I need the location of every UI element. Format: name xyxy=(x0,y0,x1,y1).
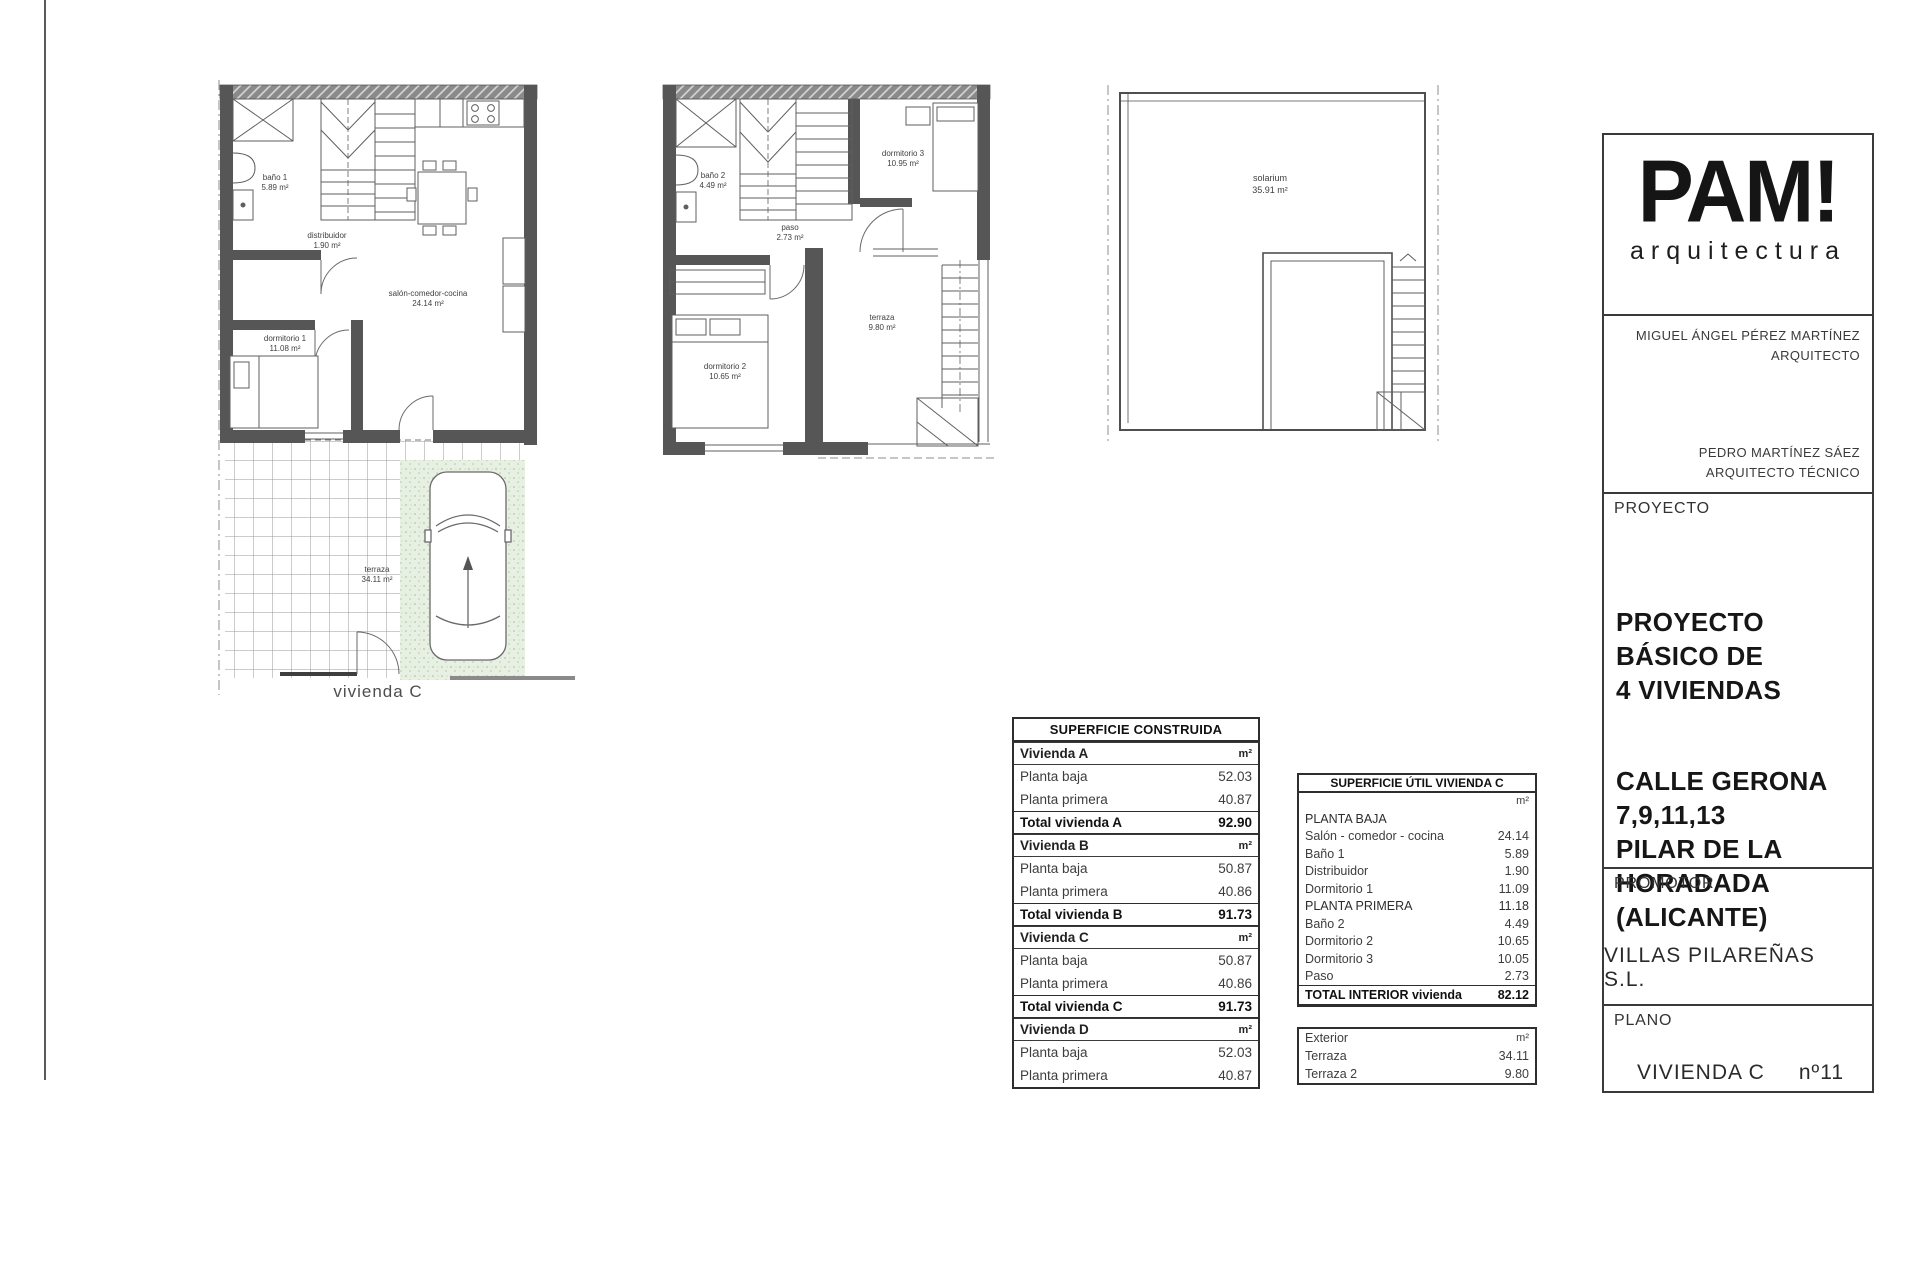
table-row: Vivienda Bm² xyxy=(1014,834,1258,857)
promotor-box: PROMOTOR VILLAS PILAREÑAS S.L. xyxy=(1604,869,1872,1006)
section-label: PROYECTO xyxy=(1604,494,1872,518)
table-row: Planta baja52.03 xyxy=(1014,1041,1258,1064)
room-area: 9.80 m² xyxy=(868,323,895,332)
toilet xyxy=(676,192,696,222)
terrace-rail xyxy=(979,260,988,442)
room-area: 1.90 m² xyxy=(313,241,340,250)
room-label: terraza xyxy=(870,313,895,322)
solarium-plan: solarium 35.91 m² xyxy=(1100,75,1450,460)
stove-icon xyxy=(467,101,499,125)
wall xyxy=(663,85,990,99)
wall xyxy=(977,85,990,260)
room-area: 10.65 m² xyxy=(709,372,741,381)
brand-subtitle: arquitectura xyxy=(1604,237,1872,266)
room-area: 34.11 m² xyxy=(362,575,393,584)
promotor-name: VILLAS PILAREÑAS S.L. xyxy=(1604,944,1858,992)
plano-name: VIVIENDA Cnº11 xyxy=(1637,1061,1844,1085)
room-area: 35.91 m² xyxy=(1252,185,1288,195)
wall xyxy=(220,85,537,99)
door xyxy=(315,258,433,430)
sink xyxy=(676,155,698,185)
room-label: salón-comedor-cocina xyxy=(389,289,468,298)
room-label: paso xyxy=(781,223,799,232)
room-area: 11.08 m² xyxy=(270,344,301,353)
wall xyxy=(343,430,400,443)
kitchen-counter xyxy=(415,99,524,127)
table-row: Baño 15.89 xyxy=(1299,845,1535,863)
ground-floor-plan: baño 1 5.89 m² distribuidor 1.90 m² saló… xyxy=(215,80,585,708)
table-row: Distribuidor1.90 xyxy=(1299,863,1535,881)
room-area: 10.95 m² xyxy=(887,159,919,168)
room-label: baño 2 xyxy=(701,171,726,180)
wall xyxy=(663,442,705,455)
bed xyxy=(933,103,978,191)
table-title: SUPERFICIE ÚTIL VIVIENDA C xyxy=(1299,775,1535,793)
table-row: Planta primera40.86 xyxy=(1014,972,1258,995)
sink xyxy=(233,153,255,183)
logo-box: PAM! arquitectura xyxy=(1604,149,1872,316)
table-row: Baño 24.49 xyxy=(1299,915,1535,933)
plan-caption: vivienda C xyxy=(318,682,438,702)
wall xyxy=(670,255,770,265)
table-row: Planta baja50.87 xyxy=(1014,857,1258,880)
room-area: 2.73 m² xyxy=(776,233,803,242)
drawing-sheet: { "title_block": { "brand": "PAM!", "bra… xyxy=(0,0,1920,1080)
table-row: Planta primera40.87 xyxy=(1014,1064,1258,1087)
table-row: Vivienda Cm² xyxy=(1014,926,1258,949)
superficie-construida-table: SUPERFICIE CONSTRUIDA Vivienda Am² Plant… xyxy=(1012,717,1260,1089)
sofa xyxy=(503,238,525,332)
sheet-left-border xyxy=(44,0,46,1080)
table-row: Dormitorio 310.05 xyxy=(1299,950,1535,968)
section-label: PROMOTOR xyxy=(1604,869,1872,893)
room-label: baño 1 xyxy=(263,173,288,182)
table-row: Exteriorm² xyxy=(1299,1029,1535,1047)
shower xyxy=(233,99,293,141)
table-row: Paso2.73 xyxy=(1299,968,1535,986)
table-title: SUPERFICIE CONSTRUIDA xyxy=(1014,719,1258,742)
table-row: Dormitorio 210.65 xyxy=(1299,933,1535,951)
exterior-staircase xyxy=(917,260,978,446)
wall xyxy=(351,320,363,430)
room-label: terraza xyxy=(365,565,390,574)
table-row: Planta baja52.03 xyxy=(1014,765,1258,788)
toilet xyxy=(233,190,253,220)
wall xyxy=(783,442,868,455)
architects-box: MIGUEL ÁNGEL PÉREZ MARTÍNEZ ARQUITECTO P… xyxy=(1604,316,1872,494)
table-row: Total vivienda B91.73 xyxy=(1014,903,1258,926)
window xyxy=(873,249,938,256)
first-floor-plan: baño 2 4.49 m² dormitorio 3 10.95 m² pas… xyxy=(658,80,998,470)
wall xyxy=(860,198,912,207)
table-row: Terraza 29.80 xyxy=(1299,1065,1535,1083)
superficie-exterior-table: Exteriorm² Terraza34.11 Terraza 29.80 xyxy=(1297,1027,1537,1085)
table-row: TOTAL INTERIOR vivienda82.12 xyxy=(1299,985,1535,1005)
table-row: PLANTA BAJA xyxy=(1299,810,1535,828)
wall xyxy=(433,430,524,443)
room-label: solarium xyxy=(1253,173,1287,183)
window xyxy=(305,433,343,439)
wall xyxy=(524,85,537,445)
room-area: 5.89 m² xyxy=(261,183,288,192)
room-label: dormitorio 2 xyxy=(704,362,747,371)
superficie-util-table: SUPERFICIE ÚTIL VIVIENDA C m² PLANTA BAJ… xyxy=(1297,773,1537,1007)
room-label: dormitorio 3 xyxy=(882,149,925,158)
wardrobe xyxy=(670,270,765,294)
table-row: Planta baja50.87 xyxy=(1014,949,1258,972)
project-title: PROYECTO BÁSICO DE 4 VIVIENDAS xyxy=(1604,606,1872,707)
section-label: PLANO xyxy=(1604,1006,1872,1030)
car-icon xyxy=(425,472,511,660)
room-area: 4.49 m² xyxy=(699,181,726,190)
table-row: Terraza34.11 xyxy=(1299,1047,1535,1065)
room-area: 24.14 m² xyxy=(412,299,444,308)
table-row: Planta primera40.87 xyxy=(1014,788,1258,811)
title-block: PAM! arquitectura MIGUEL ÁNGEL PÉREZ MAR… xyxy=(1602,133,1874,1093)
bed xyxy=(230,356,318,428)
technical-architect-name: PEDRO MARTÍNEZ SÁEZ ARQUITECTO TÉCNICO xyxy=(1699,443,1860,482)
brand-logo: PAM! xyxy=(1604,147,1872,235)
table-row: Planta primera40.86 xyxy=(1014,880,1258,903)
table-row: m² xyxy=(1299,793,1535,811)
staircase xyxy=(321,99,415,220)
room-label: distribuidor xyxy=(307,231,346,240)
plano-box: PLANO VIVIENDA Cnº11 xyxy=(1604,1006,1872,1266)
wall xyxy=(233,320,315,330)
room-label: dormitorio 1 xyxy=(264,334,307,343)
wall xyxy=(233,250,321,260)
table-row: PLANTA PRIMERA11.18 xyxy=(1299,898,1535,916)
wall xyxy=(233,430,305,443)
table-row: Dormitorio 111.09 xyxy=(1299,880,1535,898)
dining-table xyxy=(407,161,477,235)
table-row: Total vivienda C91.73 xyxy=(1014,995,1258,1018)
table-row: Vivienda Am² xyxy=(1014,742,1258,765)
nightstand xyxy=(906,107,930,125)
staircase xyxy=(740,99,852,220)
shower xyxy=(676,99,736,147)
architect-name: MIGUEL ÁNGEL PÉREZ MARTÍNEZ ARQUITECTO xyxy=(1636,326,1860,365)
table-row: Total vivienda A92.90 xyxy=(1014,811,1258,834)
table-row: Vivienda Dm² xyxy=(1014,1018,1258,1041)
proyecto-box: PROYECTO PROYECTO BÁSICO DE 4 VIVIENDAS … xyxy=(1604,494,1872,869)
solarium-outline xyxy=(1120,93,1425,430)
wall xyxy=(805,248,823,442)
table-row: Salón - comedor - cocina24.14 xyxy=(1299,828,1535,846)
